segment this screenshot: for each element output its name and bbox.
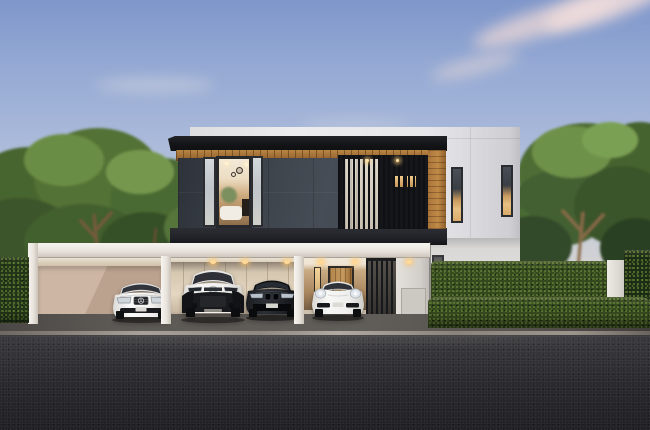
indoor-plant: [221, 187, 237, 203]
sofa: [220, 206, 242, 220]
downlight: [352, 260, 358, 264]
slit-window-left: [451, 167, 463, 223]
carport-fascia: [28, 243, 430, 258]
carport-post: [161, 256, 171, 324]
vertical-slats: [338, 155, 428, 229]
ceiling-light: [245, 163, 248, 166]
slat-balcony: [338, 155, 428, 229]
downlight: [406, 260, 412, 264]
car-bmw-sedan: [244, 272, 300, 322]
asphalt-texture: [0, 335, 650, 430]
slat-gate: [366, 258, 397, 316]
pendant-lamp: [231, 172, 236, 177]
asphalt-road: [0, 335, 650, 430]
frosted-window: [251, 156, 263, 227]
ceiling-light: [225, 162, 228, 165]
pendant-lamp: [236, 167, 243, 174]
frosted-window: [203, 157, 216, 227]
ceiling-light: [366, 159, 369, 162]
scene-root: [0, 0, 650, 430]
dark-roof-fascia: [168, 136, 447, 151]
hedge-front-tier: [428, 297, 650, 328]
wood-side-column: [428, 150, 446, 229]
downlight: [284, 260, 290, 264]
dark-hedge-left: [0, 257, 29, 323]
car-porsche-911: [310, 274, 366, 322]
downlight: [318, 260, 324, 264]
car-toyota-chr: [178, 263, 248, 324]
living-room-window: [216, 156, 252, 228]
panel-joint: [470, 127, 471, 243]
carport-post: [294, 256, 304, 324]
ceiling-light: [396, 159, 399, 162]
carport-post: [28, 243, 38, 324]
dark-console: [242, 199, 250, 216]
slit-window-right: [501, 165, 513, 217]
utility-box: [401, 288, 426, 316]
